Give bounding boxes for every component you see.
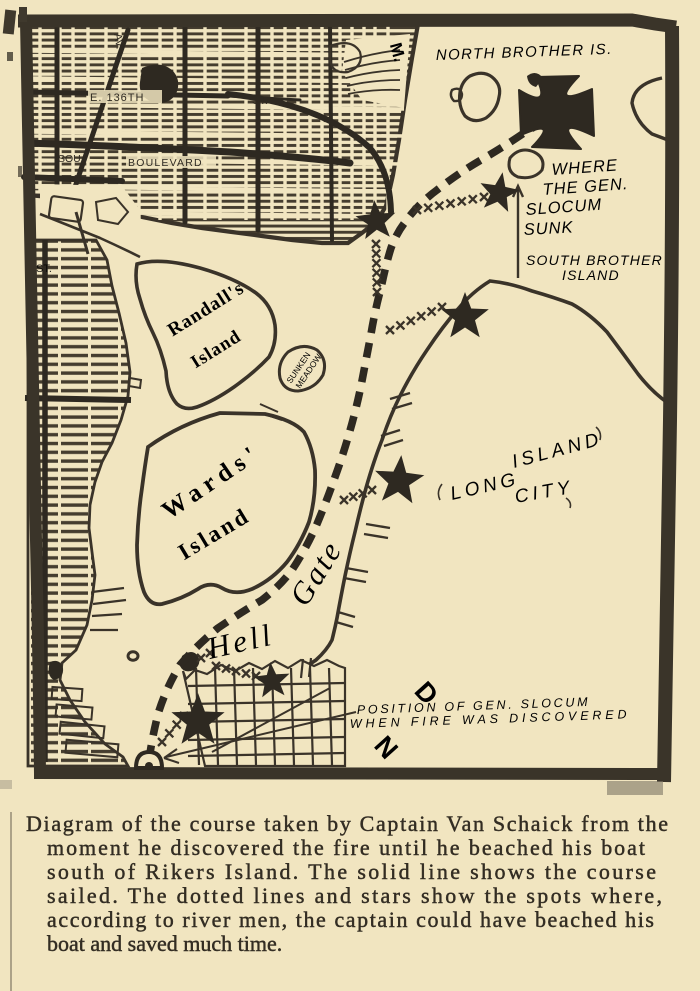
svg-text:BOULEVARD: BOULEVARD [128, 157, 203, 169]
svg-text:SOU: SOU [58, 153, 81, 165]
svg-text:boat and saved much time.: boat and saved much time. [47, 931, 282, 956]
svg-text:ST.: ST. [36, 263, 52, 275]
svg-text:according to river men, the ca: according to river men, the captain coul… [47, 907, 654, 932]
svg-text:E. 136TH: E. 136TH [90, 92, 144, 104]
svg-text:Diagram of the course taken by: Diagram of the course taken by Captain V… [26, 811, 668, 836]
svg-text:SUNK: SUNK [523, 218, 574, 239]
svg-text:ISLAND: ISLAND [562, 267, 620, 283]
svg-text:sailed. The dotted lines and: sailed. The dotted lines and stars show … [47, 883, 662, 908]
svg-text:ST.: ST. [252, 95, 268, 107]
svg-text:SOUTH BROTHER: SOUTH BROTHER [526, 252, 663, 268]
